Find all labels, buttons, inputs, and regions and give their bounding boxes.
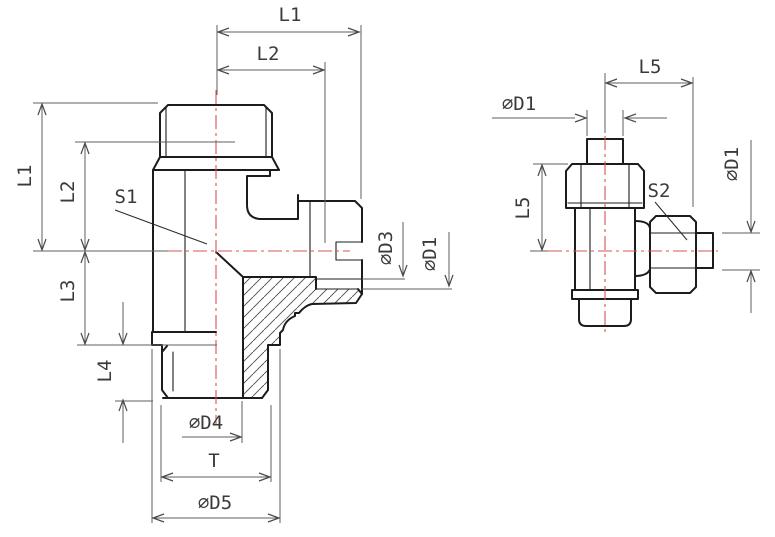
front-view: L1 L2 L1 L2 L3 L4 S1 ∅D3 ∅D1 ∅D4 T ∅D5 (14, 4, 453, 523)
dim-label-d4: ∅D4 (189, 412, 223, 434)
drawing-svg: L1 L2 L1 L2 L3 L4 S1 ∅D3 ∅D1 ∅D4 T ∅D5 (0, 0, 775, 537)
dim-label-l5-top: L5 (639, 56, 662, 78)
section-cut-outline (216, 252, 362, 398)
dim-label-l1-top: L1 (279, 4, 302, 26)
side-view: L5 ∅D1 L5 S2 ∅D1 (492, 56, 760, 335)
right-port-thread-and-bore (310, 201, 362, 289)
dim-label-t: T (208, 450, 219, 472)
dim-label-d1-right: ∅D1 (721, 147, 743, 181)
dim-label-l4: L4 (94, 360, 116, 383)
technical-drawing-canvas: L1 L2 L1 L2 L3 L4 S1 ∅D3 ∅D1 ∅D4 T ∅D5 (0, 0, 775, 537)
dim-label-l1-left: L1 (14, 165, 36, 188)
dim-label-d1-side: ∅D1 (419, 237, 441, 271)
wrench-size-label-s1: S1 (115, 186, 138, 208)
dim-label-l5-left: L5 (512, 197, 534, 220)
dim-label-l3: L3 (57, 280, 79, 303)
dim-label-d3: ∅D3 (375, 231, 397, 265)
dim-label-l2-left: L2 (57, 181, 79, 204)
dim-label-d1-top: ∅D1 (502, 93, 536, 115)
dim-label-l2-top: L2 (257, 43, 280, 65)
section-hatch-area (243, 277, 362, 398)
neck-outline (635, 221, 650, 276)
front-dimensions (33, 25, 453, 523)
wrench-size-label-s2: S2 (648, 180, 671, 202)
right-nut-outline (650, 216, 696, 293)
dim-label-d5: ∅D5 (198, 492, 232, 514)
